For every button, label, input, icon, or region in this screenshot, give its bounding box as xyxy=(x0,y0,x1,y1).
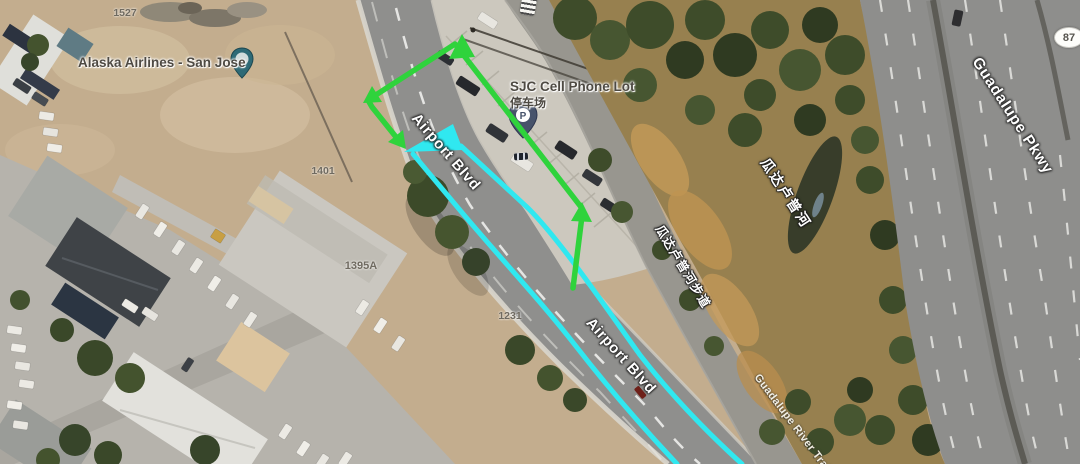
poi-label-sjc-cell-phone-lot[interactable]: SJC Cell Phone Lot xyxy=(510,79,635,94)
poi-label-sjc-lot-chinese[interactable]: 停车场 xyxy=(510,94,546,111)
highway-87-number: 87 xyxy=(1063,32,1075,44)
address-label-1395a: 1395A xyxy=(345,260,377,272)
poi-label-alaska-airlines[interactable]: Alaska Airlines - San Jose xyxy=(78,55,246,70)
satellite-map-canvas[interactable]: P 1527 Alaska Airlines - San Jose SJC Ce… xyxy=(0,0,1080,464)
green-arrowhead-up xyxy=(571,202,592,222)
address-label-1527: 1527 xyxy=(113,7,136,19)
highway-87-shield-icon: 87 xyxy=(1054,27,1080,48)
address-label-1231: 1231 xyxy=(498,310,521,322)
address-label-1401: 1401 xyxy=(311,165,334,177)
car-plate-badge-icon xyxy=(514,153,528,161)
